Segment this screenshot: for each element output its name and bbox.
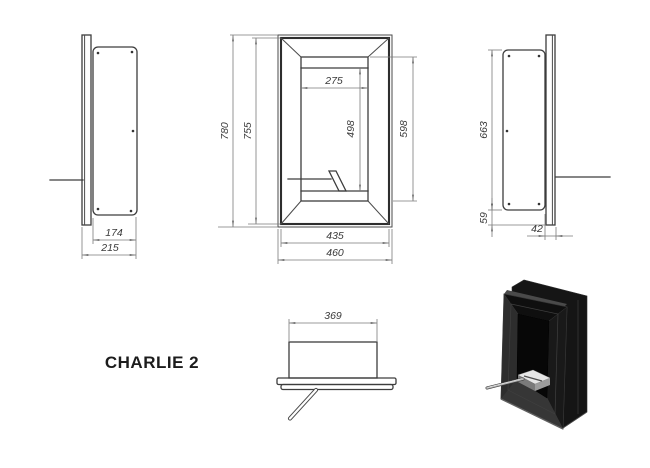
front-view: 780 755 275 498 598 435 460 <box>218 35 417 264</box>
frame-outer-edge <box>278 35 392 227</box>
dim-label-663: 663 <box>478 121 490 139</box>
render-3d <box>487 280 587 429</box>
technical-drawing-sheet: 174 215 780 755 <box>0 0 650 468</box>
mounting-flange-left-view <box>82 35 91 225</box>
screw-points-right-view <box>506 55 541 206</box>
drawing-svg: 174 215 780 755 <box>0 0 650 468</box>
dim-label-755: 755 <box>242 122 254 140</box>
front-glass-top-view <box>281 385 393 390</box>
poker-rod-top-view <box>290 390 316 419</box>
dim-label-275: 275 <box>324 75 343 87</box>
dim-label-435: 435 <box>326 230 344 242</box>
dim-label-369: 369 <box>324 310 342 322</box>
side-view-left: 174 215 <box>50 35 137 259</box>
dim-label-598: 598 <box>398 120 410 138</box>
dim-label-498: 498 <box>345 120 357 138</box>
screw-points-left-view <box>97 51 135 213</box>
casing-body-right-view <box>503 50 545 210</box>
dim-label-460: 460 <box>326 247 344 259</box>
dim-label-59: 59 <box>478 212 490 224</box>
dim-label-42: 42 <box>531 223 543 235</box>
dim-label-215: 215 <box>100 242 119 254</box>
bevel-corner-lines <box>281 38 389 224</box>
mounting-flange-right-view <box>546 35 555 225</box>
product-title: CHARLIE 2 <box>105 353 199 372</box>
side-view-right: 663 59 42 <box>478 35 610 240</box>
casing-body-left-view <box>93 47 137 215</box>
dim-label-174: 174 <box>105 227 123 239</box>
casing-body-top-view <box>289 342 377 378</box>
top-view: 369 <box>277 310 396 419</box>
dim-label-780: 780 <box>219 122 231 140</box>
poker-blade-front <box>329 171 346 191</box>
flange-plate-top-view <box>277 378 396 385</box>
frame-face <box>281 38 389 224</box>
